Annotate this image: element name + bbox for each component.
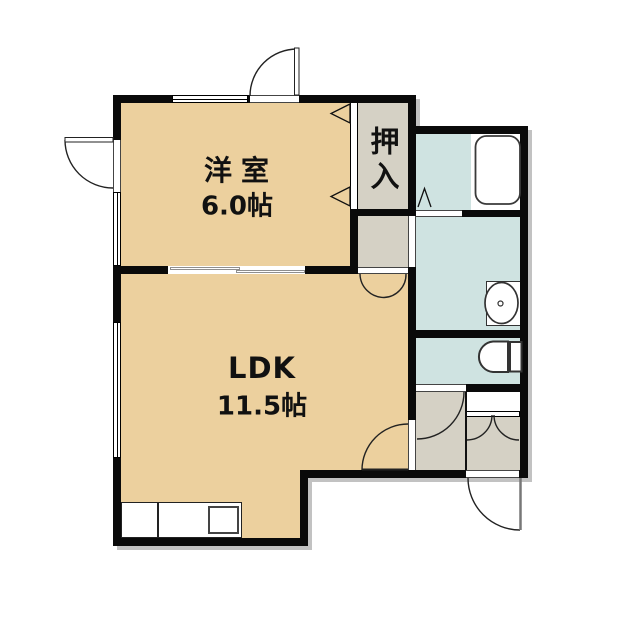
entry-niche (466, 392, 520, 411)
door-opening-toilet (416, 384, 466, 392)
window-west-bedroom (113, 192, 121, 266)
window-north (172, 95, 248, 103)
wall-bottom (113, 538, 308, 546)
label-oshiire: 押入 (362, 126, 404, 196)
room-toilet (416, 338, 520, 384)
wall-oshiire-bottom (350, 209, 416, 216)
door-opening-north (250, 95, 299, 103)
bathtub-surround (471, 134, 520, 210)
washbasin-counter (486, 281, 520, 326)
entry-closet-opening (466, 411, 520, 417)
door-opening-entrance (466, 470, 519, 478)
window-west-ldk (113, 322, 121, 458)
label-western-room-size: 6.0帖 (201, 186, 273, 223)
sliding-door-panel-left (170, 267, 240, 270)
entry-closet-divider (465, 392, 467, 470)
wall-corridor-left (350, 216, 358, 267)
wall-wash-toilet (408, 330, 528, 338)
label-western-room: 洋室 (204, 149, 278, 189)
label-ldk-size: 11.5帖 (217, 386, 307, 423)
room-corridor (358, 216, 408, 267)
fusuma-opening-oshiire (350, 103, 358, 209)
door-opening-bath (416, 210, 462, 217)
wall-bath-top (408, 126, 528, 134)
wall-step-vertical (300, 470, 308, 546)
door-opening-west (113, 140, 121, 192)
opening-corridor-ldk (358, 267, 408, 274)
wall-right (520, 126, 528, 478)
door-opening-washroom (408, 216, 416, 267)
label-ldk: LDK (228, 351, 296, 385)
door-opening-ldk-entry (408, 420, 416, 470)
plan-base (0, 0, 640, 640)
kitchen-sink (208, 506, 239, 534)
kitchen-counter-divider (157, 502, 159, 538)
floor-plan: 洋室 6.0帖 LDK 11.5帖 押入 (0, 0, 640, 640)
sliding-door-panel-right (236, 270, 305, 273)
